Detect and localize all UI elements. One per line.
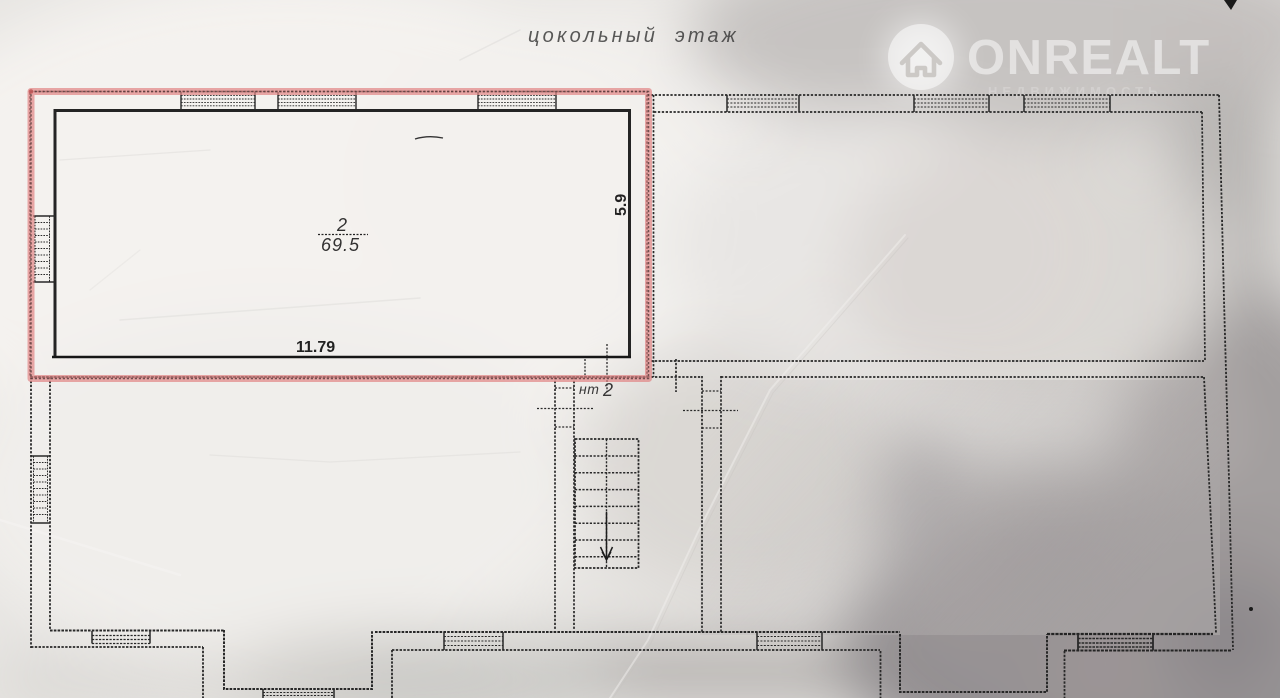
svg-text:НЕДВИЖИМОСТЬ: НЕДВИЖИМОСТЬ — [988, 84, 1162, 99]
svg-text:69.5: 69.5 — [321, 235, 360, 255]
svg-text:ONREALT: ONREALT — [967, 31, 1211, 85]
svg-text:2: 2 — [336, 215, 347, 235]
svg-text:2: 2 — [602, 380, 613, 400]
svg-text:цокольный этаж: цокольный этаж — [528, 25, 739, 47]
svg-text:5.9: 5.9 — [613, 194, 630, 216]
svg-text:нт: нт — [579, 381, 599, 397]
svg-text:11.79: 11.79 — [296, 339, 335, 356]
